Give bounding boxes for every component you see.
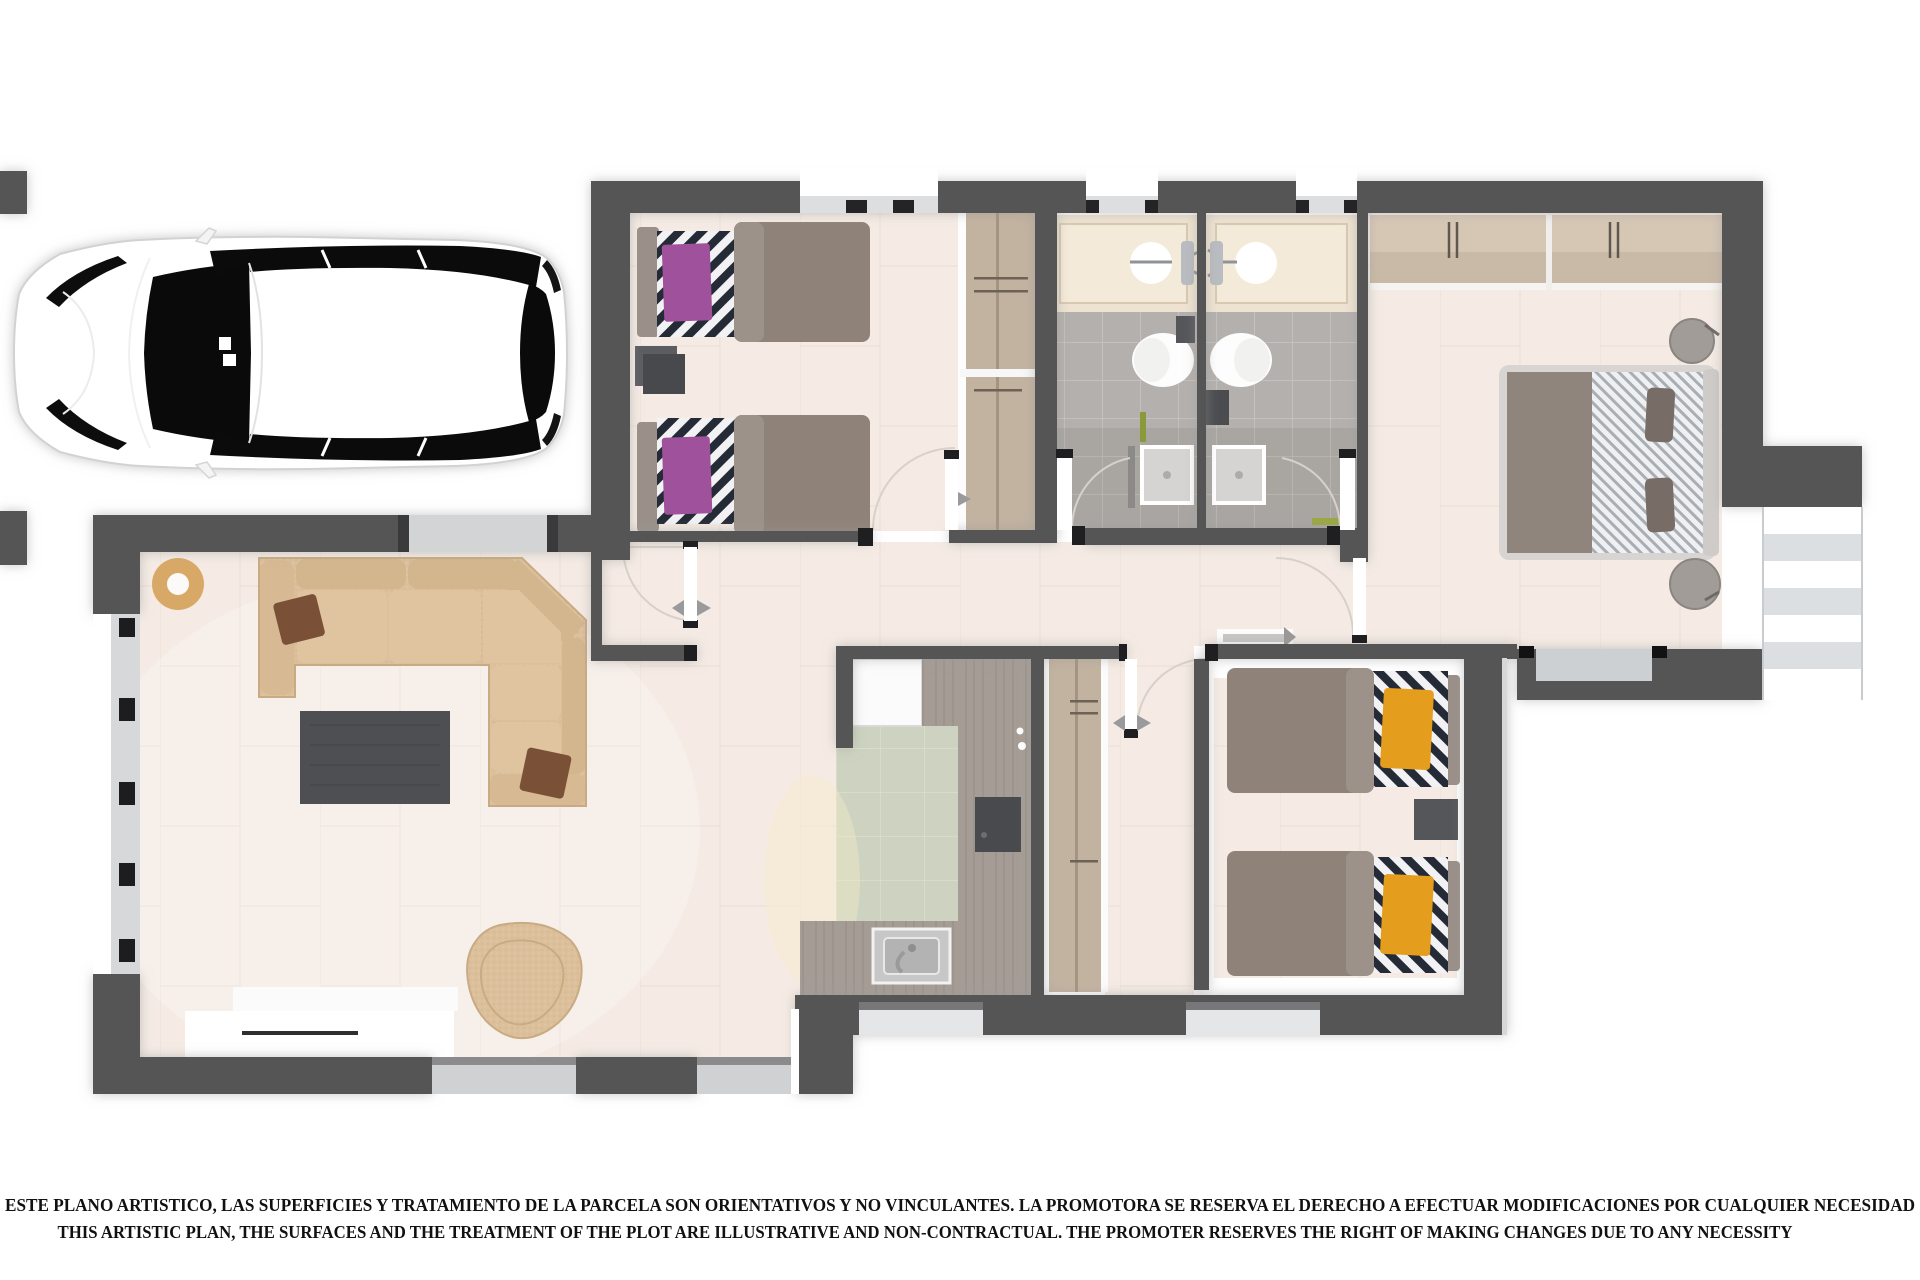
svg-text:THIS ARTISTIC PLAN, THE SURFAC: THIS ARTISTIC PLAN, THE SURFACES AND THE… [58,1222,1793,1242]
svg-text:ESTE PLANO ARTISTICO, LAS SUPE: ESTE PLANO ARTISTICO, LAS SUPERFICIES Y … [5,1195,1915,1215]
